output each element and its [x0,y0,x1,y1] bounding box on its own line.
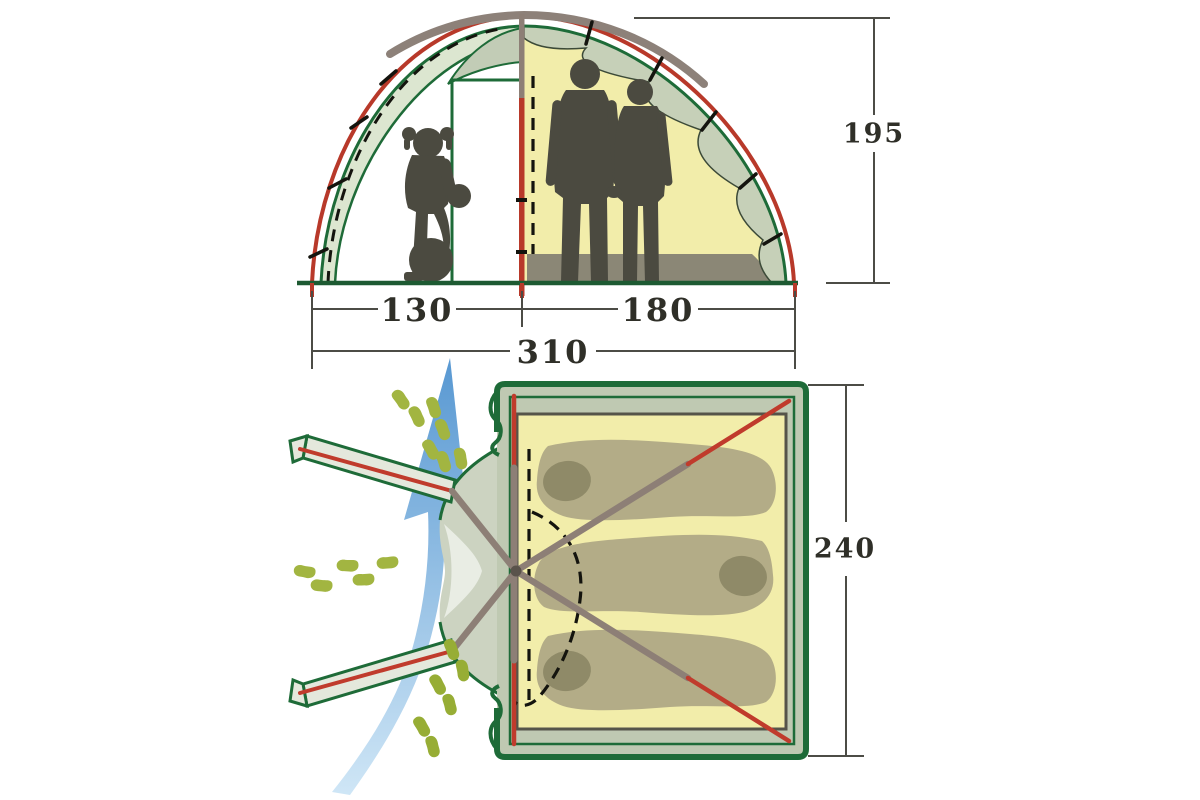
dimension-label-height: 195 [843,119,905,150]
pole-arm-lower [290,640,455,706]
diagram-canvas: 195 130 180 310 240 [0,0,1200,800]
dimension-label-depth: 240 [814,534,876,565]
dimension-label-total-width: 310 [517,333,590,371]
child-silhouette [402,127,471,282]
dimension-label-vestibule-width: 130 [381,291,454,329]
dimension-label-inner-width: 180 [622,291,695,329]
sleeping-bag [537,630,776,711]
cross-section-view [297,14,798,298]
inner-doorway-frame [452,80,521,282]
sleeping-bags-icon [534,440,776,711]
floor-plan-view [290,358,806,795]
tent-specification-diagram: 195 130 180 310 240 [0,0,1200,800]
